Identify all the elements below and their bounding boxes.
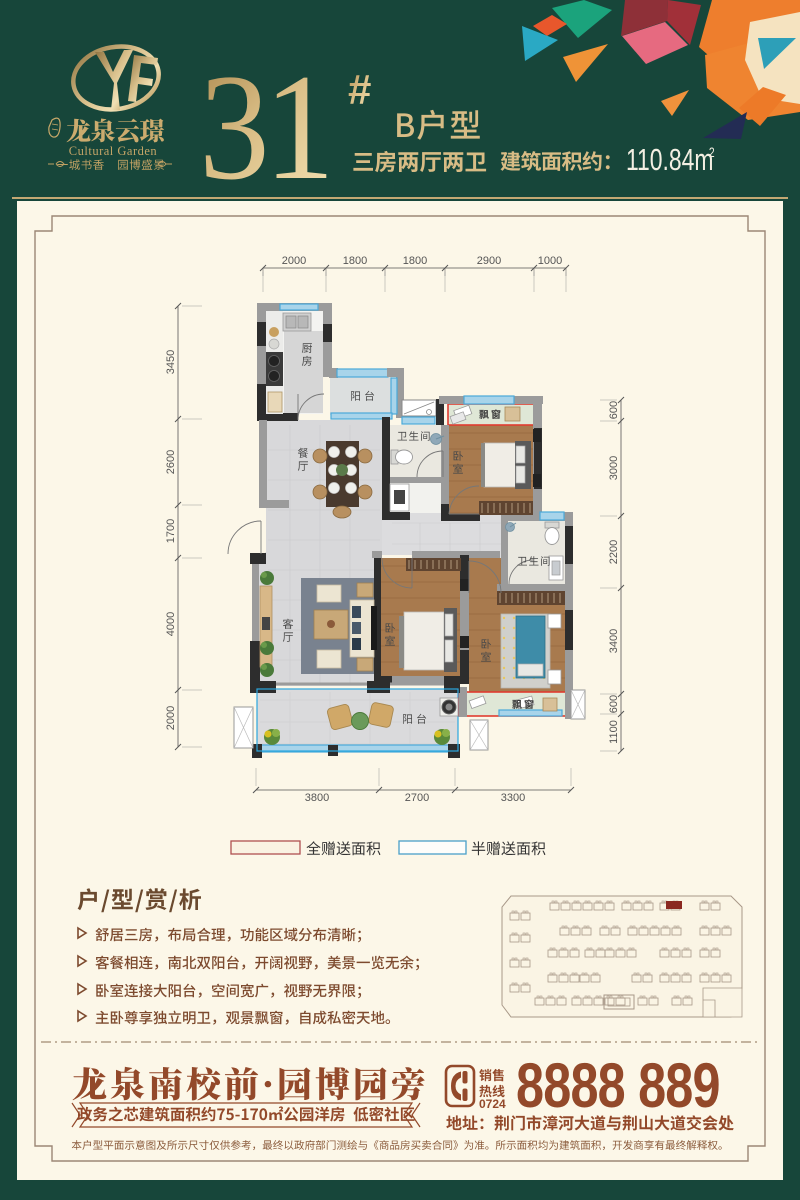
svg-text:3000: 3000 — [608, 456, 620, 480]
svg-text:1800: 1800 — [343, 255, 367, 267]
svg-text:8888 889: 8888 889 — [516, 1051, 720, 1122]
svg-text:3300: 3300 — [501, 792, 525, 804]
svg-text:1100: 1100 — [608, 720, 620, 744]
svg-text:2600: 2600 — [165, 450, 177, 474]
svg-text:1000: 1000 — [538, 255, 562, 267]
svg-text:2200: 2200 — [608, 540, 620, 564]
svg-text:2000: 2000 — [282, 255, 306, 267]
svg-text:2900: 2900 — [477, 255, 501, 267]
svg-text:0724: 0724 — [479, 1097, 506, 1111]
svg-text:1700: 1700 — [165, 519, 177, 543]
svg-text:2: 2 — [709, 144, 715, 160]
svg-text:1800: 1800 — [403, 255, 427, 267]
svg-text:3450: 3450 — [165, 350, 177, 374]
svg-text:600: 600 — [608, 401, 620, 419]
svg-text:3400: 3400 — [608, 629, 620, 653]
svg-text:31: 31 — [199, 42, 329, 211]
svg-text:#: # — [348, 66, 371, 113]
svg-text:110.84m: 110.84m — [626, 142, 714, 177]
svg-text:3800: 3800 — [305, 792, 329, 804]
svg-text:600: 600 — [608, 695, 620, 713]
svg-text:2700: 2700 — [405, 792, 429, 804]
svg-text:2000: 2000 — [165, 706, 177, 730]
svg-text:Cultural Garden: Cultural Garden — [69, 144, 158, 158]
svg-text:4000: 4000 — [165, 612, 177, 636]
